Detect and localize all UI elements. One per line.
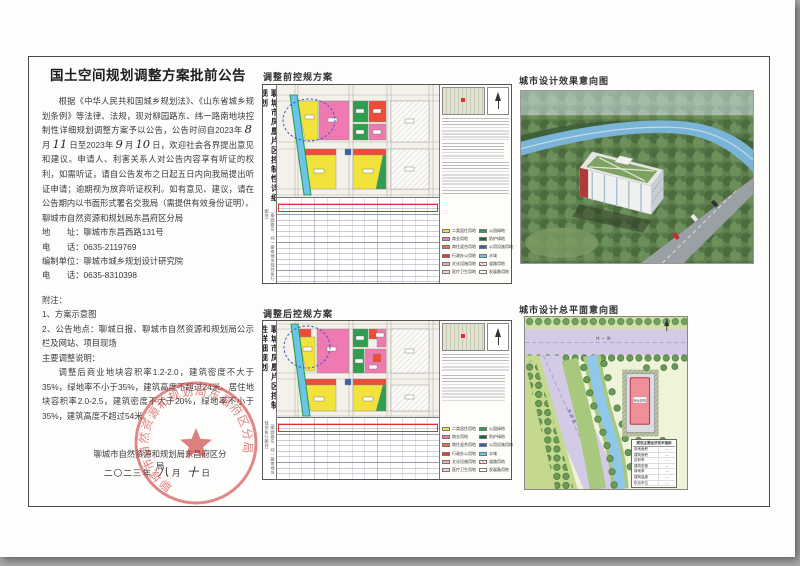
legend-label: 行政办公用地	[452, 451, 476, 457]
handwritten-day-1: 11	[51, 137, 70, 151]
legend-swatch	[479, 443, 487, 447]
legend-swatch	[479, 435, 487, 439]
legend-label: 文化设施用地	[452, 459, 476, 465]
legend-item: 道路用地	[479, 261, 513, 267]
legend-item: 道路用地	[479, 459, 513, 465]
legend-label: 公园绿地	[489, 426, 505, 432]
indicator-table	[277, 417, 439, 479]
legend-item: 行政办公用地	[442, 451, 476, 457]
legend-label: 医疗卫生用地	[452, 467, 476, 473]
building-label: 商业建筑	[634, 397, 646, 402]
legend-item: 公用设施用地	[479, 442, 513, 448]
legend-swatch	[442, 245, 450, 249]
notes-text-block	[442, 375, 505, 401]
legend-label: 二类居住用地	[452, 426, 476, 432]
location-inset	[442, 87, 509, 115]
indicator-value: —	[659, 464, 675, 469]
after-map-graphic	[277, 321, 439, 417]
indicator-name: 机动车位	[633, 481, 659, 486]
map-subtitle-text: （柳园路东、纬一路南地块规划执行图则）	[264, 421, 276, 479]
notice-text-column: 国土空间规划调整方案批前公告 根据《中华人民共和国城乡规划法》、《山东省城乡规划…	[42, 62, 254, 424]
compiler-line: 编制单位：聊城市城乡规划设计研究院	[42, 254, 254, 268]
highlighted-table-row	[278, 424, 438, 432]
map-legend: 二类居住用地商业用地商住混合用地行政办公用地文化设施用地医疗卫生用地 公园绿地防…	[442, 228, 509, 275]
handwritten-day-2: 10	[133, 137, 152, 151]
legend-swatch	[479, 245, 487, 249]
notes-text-block	[442, 162, 509, 196]
compiler-label: 编制单位：	[42, 256, 84, 266]
before-plan-sheet: 聊城市凤凰片区控制性详细规划 （柳园路东、纬一路南地块规划执行图则）	[262, 84, 512, 284]
address-value: 聊城市东昌西路131号	[84, 227, 164, 237]
legend-item: 公园绿地	[479, 426, 513, 432]
legend-item: 二类居住用地	[442, 228, 476, 234]
legend-label: 公园绿地	[489, 228, 505, 234]
legend-label: 防护绿地	[489, 236, 505, 242]
legend-swatch	[442, 468, 450, 472]
legend-item: 发展备用地	[479, 467, 513, 473]
legend-label: 防护绿地	[489, 434, 505, 440]
notice-text: 根据《中华人民共和国城乡规划法》、《山东省城乡规划条例》等法律、法规，现对柳园路…	[42, 96, 254, 135]
legend-swatch	[479, 237, 487, 241]
legend-swatch	[442, 443, 450, 447]
legend-item: 商住混合用地	[442, 442, 476, 448]
notes-title: 附注：	[42, 293, 254, 307]
location-inset	[442, 323, 509, 351]
legend-item: 二类居住用地	[442, 426, 476, 432]
indicator-name: 容积率	[633, 458, 659, 463]
indicator-name: 用地面积	[633, 447, 659, 452]
legend-item: 医疗卫生用地	[442, 467, 476, 473]
legend-item: 防护绿地	[479, 236, 513, 242]
legend-swatch	[442, 229, 450, 233]
legend-swatch	[479, 468, 487, 472]
legend-item: 商住混合用地	[442, 244, 476, 250]
north-arrow-icon	[487, 323, 509, 351]
legend-item: 文化设施用地	[442, 261, 476, 267]
agency-name: 聊城市自然资源和规划局东昌府区分局	[42, 211, 254, 225]
map-title-text: 聊城市凤凰片区控制性详细规划	[263, 89, 277, 203]
legend-label: 发展备用地	[489, 467, 509, 473]
before-map-graphic	[277, 85, 439, 197]
legend-item: 水域	[479, 253, 513, 259]
legend-label: 医疗卫生用地	[452, 269, 476, 275]
before-plan-label: 调整前控规方案	[263, 70, 333, 83]
notes-text-block	[442, 143, 504, 159]
legend-label: 公用设施用地	[489, 244, 513, 250]
legend-swatch	[442, 427, 450, 431]
legend-label: 商业用地	[452, 434, 468, 440]
map-vertical-title: 聊城市凤凰片区控制性详细规划 （柳园路东、纬一路南地块规划执行图则）	[263, 321, 277, 479]
north-arrow-icon	[487, 87, 509, 115]
notice-paragraph: 根据《中华人民共和国城乡规划法》、《山东省城乡规划条例》等法律、法规，现对柳园路…	[42, 94, 254, 211]
legend-swatch	[479, 262, 487, 266]
highlighted-table-row	[278, 204, 438, 212]
legend-swatch	[479, 460, 487, 464]
legend-swatch	[442, 435, 450, 439]
scanned-page: 国土空间规划调整方案批前公告 根据《中华人民共和国城乡规划法》、《山东省城乡规划…	[0, 0, 795, 557]
address-line: 地 址：聊城市东昌西路131号	[42, 225, 254, 239]
render-panel-label: 城市设计效果意向图	[519, 74, 609, 87]
note-1: 1、方案示意图	[42, 307, 254, 321]
phone-value: 0635-2119769	[84, 242, 137, 252]
map-sidebar: 二类居住用地商业用地商住混合用地行政办公用地文化设施用地医疗卫生用地 公园绿地防…	[439, 85, 511, 283]
legend-item: 行政办公用地	[442, 253, 476, 259]
phone-line: 电 话：0635-2119769	[42, 240, 254, 254]
address-label: 地 址：	[42, 227, 84, 237]
legend-item: 公用设施用地	[479, 244, 513, 250]
legend-label: 发展备用地	[489, 269, 509, 275]
legend-item: 公园绿地	[479, 228, 513, 234]
legend-swatch	[442, 270, 450, 274]
notes-text-block	[442, 354, 509, 372]
legend-label: 商住混合用地	[452, 442, 476, 448]
indicator-value: —	[659, 481, 675, 486]
legend-swatch	[479, 270, 487, 274]
location-inset-map	[442, 323, 485, 351]
after-plan-label: 调整后控规方案	[263, 307, 333, 320]
legend-item: 商业用地	[442, 236, 476, 242]
map-sidebar: 二类居住用地商业用地商住混合用地行政办公用地文化设施用地医疗卫生用地 公园绿地防…	[439, 321, 511, 479]
note-2: 2、公告地点：聊城日报、聊城市自然资源和规划局公示栏及网站、项目现场	[42, 322, 254, 351]
legend-item: 防护绿地	[479, 434, 513, 440]
legend-swatch	[442, 460, 450, 464]
indicator-value: —	[659, 458, 675, 463]
indicator-value: —	[659, 447, 675, 452]
urban-design-rendering	[520, 90, 754, 264]
legend-swatch	[479, 229, 487, 233]
legend-label: 道路用地	[489, 261, 505, 267]
legend-swatch	[479, 254, 487, 258]
legend-swatch	[479, 427, 487, 431]
legend-item: 发展备用地	[479, 269, 513, 275]
site-marker	[461, 334, 465, 338]
legend-label: 公用设施用地	[489, 442, 513, 448]
legend-swatch	[442, 452, 450, 456]
phone2-label: 电 话：	[42, 270, 84, 280]
official-seal-stamp: 聊城市自然资源和规划局东昌府区分局	[131, 378, 261, 508]
legend-swatch	[442, 254, 450, 258]
legend-label: 水域	[489, 253, 497, 259]
notes-text-block	[442, 118, 509, 140]
indicator-value: —	[659, 453, 675, 458]
phone2-value: 0635-8310398	[84, 270, 138, 280]
notice-text: 日至2023年	[69, 140, 113, 150]
indicator-name: 建筑高度	[633, 475, 659, 480]
after-plan-sheet: 聊城市凤凰片区控制性详细规划 （柳园路东、纬一路南地块规划执行图则）	[262, 320, 512, 480]
siteplan-panel: 商业建筑 纬一路 柳园路 规划主要经济技术指标 用地面积—建筑面积—容积率—建筑…	[524, 316, 688, 490]
legend-label: 文化设施用地	[452, 261, 476, 267]
legend-item: 水域	[479, 451, 513, 457]
legend-label: 水域	[489, 451, 497, 457]
compiler-value: 聊城市城乡规划设计研究院	[84, 256, 184, 266]
phone-label: 电 话：	[42, 242, 84, 252]
siteplan-panel-label: 城市设计总平面意向图	[519, 303, 619, 316]
rendering-image	[521, 91, 753, 263]
adjust-title: 主要调整说明：	[42, 351, 254, 365]
legend-swatch	[479, 452, 487, 456]
legend-swatch	[442, 262, 450, 266]
indicator-value: —	[659, 475, 675, 480]
siteplan-table-row: 机动车位—	[633, 481, 675, 487]
indicator-name: 建筑密度	[633, 464, 659, 469]
indicator-value: —	[659, 469, 675, 474]
map-title-text: 聊城市凤凰片区控制性详细规划	[263, 325, 277, 415]
map-subtitle-text: （柳园路东、纬一路南地块规划执行图则）	[264, 209, 276, 283]
indicator-name: 建筑面积	[633, 453, 659, 458]
page-title: 国土空间规划调整方案批前公告	[42, 64, 254, 84]
notice-text: 月	[42, 140, 51, 150]
siteplan-indicator-table: 规划主要经济技术指标 用地面积—建筑面积—容积率—建筑密度—绿地率—建筑高度—机…	[631, 439, 677, 488]
map-vertical-title: 聊城市凤凰片区控制性详细规划 （柳园路东、纬一路南地块规划执行图则）	[263, 85, 277, 283]
indicator-table	[277, 197, 439, 283]
site-marker	[461, 98, 465, 102]
legend-swatch	[442, 237, 450, 241]
phone2-line: 电 话：0635-8310398	[42, 268, 254, 282]
legend-label: 商住混合用地	[452, 244, 476, 250]
legend-label: 行政办公用地	[452, 253, 476, 259]
seal-star-icon	[180, 428, 212, 458]
handwritten-month-1: 8	[243, 122, 254, 136]
legend-item: 商业用地	[442, 434, 476, 440]
legend-label: 二类居住用地	[452, 228, 476, 234]
indicator-name: 绿地率	[633, 469, 659, 474]
legend-item: 文化设施用地	[442, 459, 476, 465]
legend-label: 道路用地	[489, 459, 505, 465]
handwritten-month-2: 9	[113, 137, 124, 151]
legend-label: 商业用地	[452, 236, 468, 242]
road-label-weiyi: 纬一路	[596, 335, 613, 340]
location-inset-map	[442, 87, 485, 115]
legend-item: 医疗卫生用地	[442, 269, 476, 275]
map-legend: 二类居住用地商业用地商住混合用地行政办公用地文化设施用地医疗卫生用地 公园绿地防…	[442, 426, 509, 473]
